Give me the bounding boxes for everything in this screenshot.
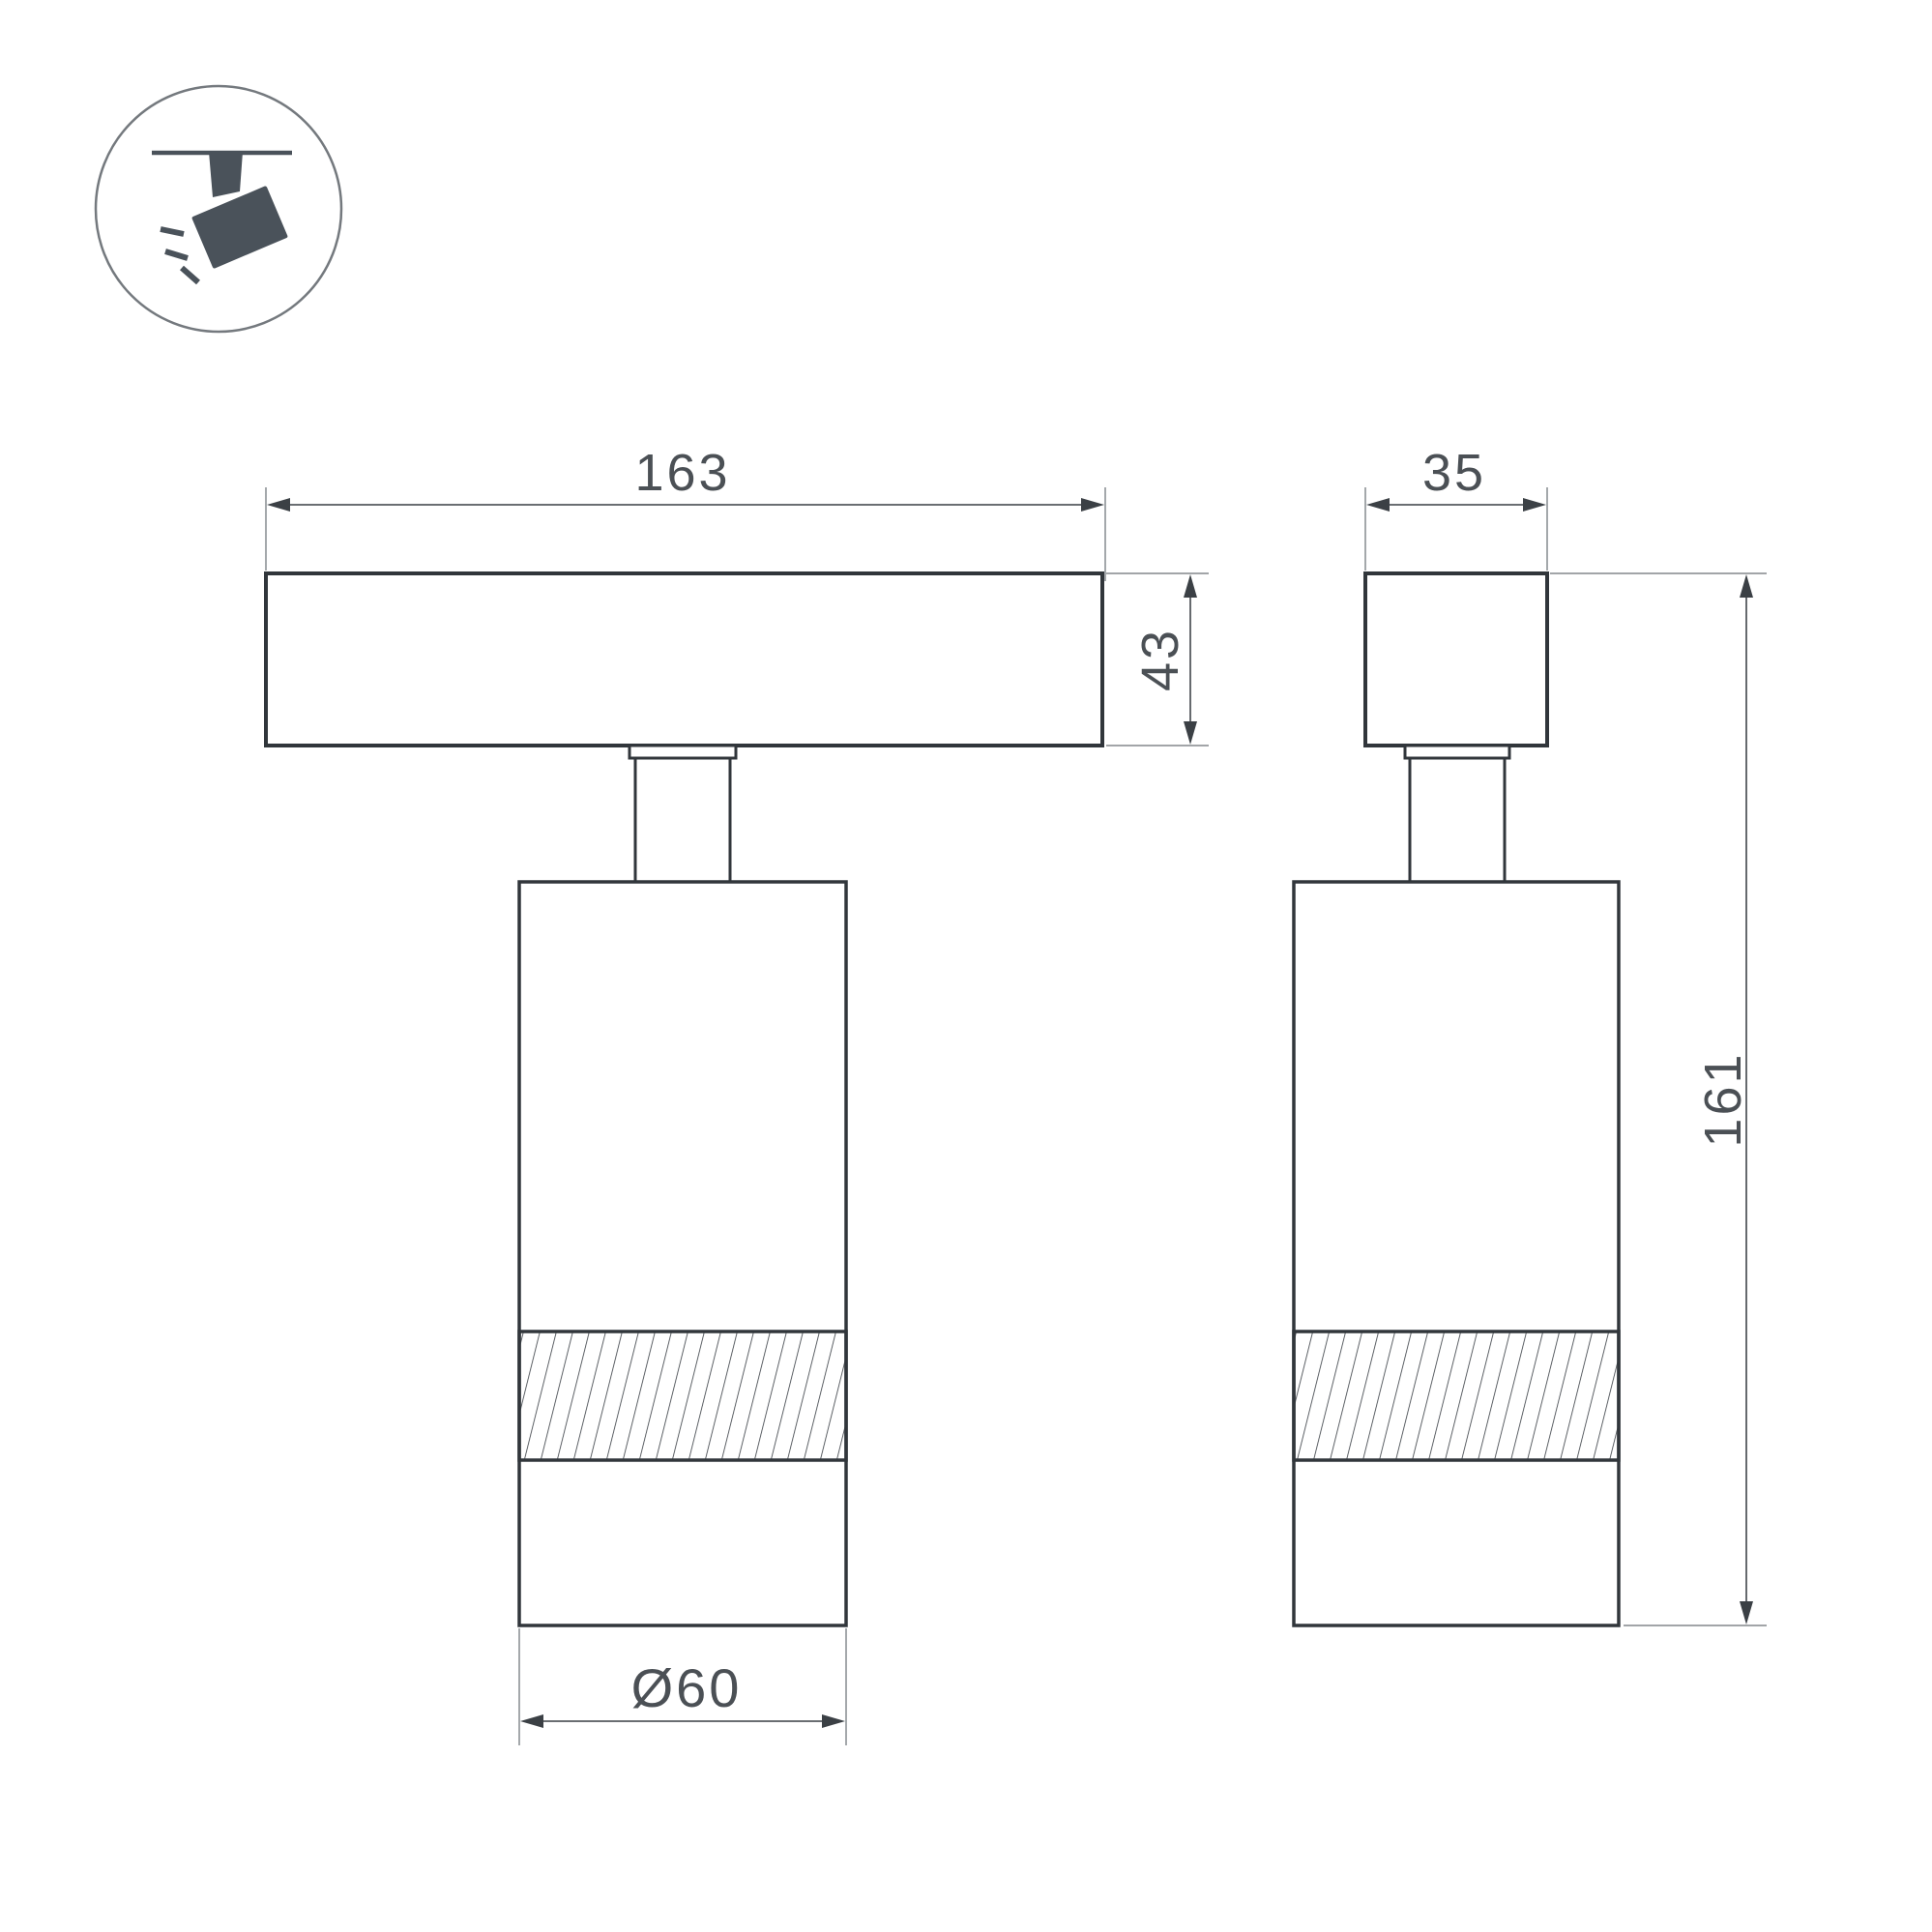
arrow-right-icon xyxy=(822,1714,845,1728)
arrow-left-icon xyxy=(520,1714,543,1728)
knurled-ring-side xyxy=(1294,1332,1619,1460)
arrow-up-icon xyxy=(1184,574,1197,598)
dim-total-height-label: 161 xyxy=(1694,1051,1752,1147)
spotlight-stem-icon xyxy=(209,152,243,197)
track-bar xyxy=(266,573,1102,746)
dim-side-width-label: 35 xyxy=(1422,444,1486,502)
track-mount-icon xyxy=(96,86,341,332)
arrow-right-icon xyxy=(1523,498,1546,512)
lamp-body xyxy=(519,882,846,1625)
swivel-collar xyxy=(629,746,736,758)
dim-track-length-label: 163 xyxy=(634,444,730,502)
arrow-left-icon xyxy=(267,498,290,512)
dimension-track-length: 163 xyxy=(266,444,1105,581)
arrow-down-icon xyxy=(1740,1601,1753,1625)
lamp-body-side xyxy=(1294,882,1619,1625)
track-bar-side xyxy=(1365,573,1547,746)
arrow-up-icon xyxy=(1740,574,1753,598)
dimension-side-width: 35 xyxy=(1365,444,1547,571)
dimension-track-height: 43 xyxy=(1106,573,1209,746)
dimension-body-diameter: Ø60 xyxy=(519,1628,846,1745)
swivel-collar-side xyxy=(1405,746,1509,758)
dim-body-diameter-label: Ø60 xyxy=(631,1657,743,1718)
swivel-stem xyxy=(635,758,730,882)
arrow-left-icon xyxy=(1366,498,1390,512)
technical-drawing-canvas: 163 43 35 161 Ø60 xyxy=(0,0,1932,1932)
swivel-stem-side xyxy=(1410,758,1505,882)
side-view xyxy=(1294,573,1619,1625)
arrow-down-icon xyxy=(1184,721,1197,745)
front-view xyxy=(266,573,1102,1625)
dim-track-height-label: 43 xyxy=(1131,628,1189,691)
arrow-right-icon xyxy=(1081,498,1104,512)
knurled-ring xyxy=(519,1332,846,1460)
